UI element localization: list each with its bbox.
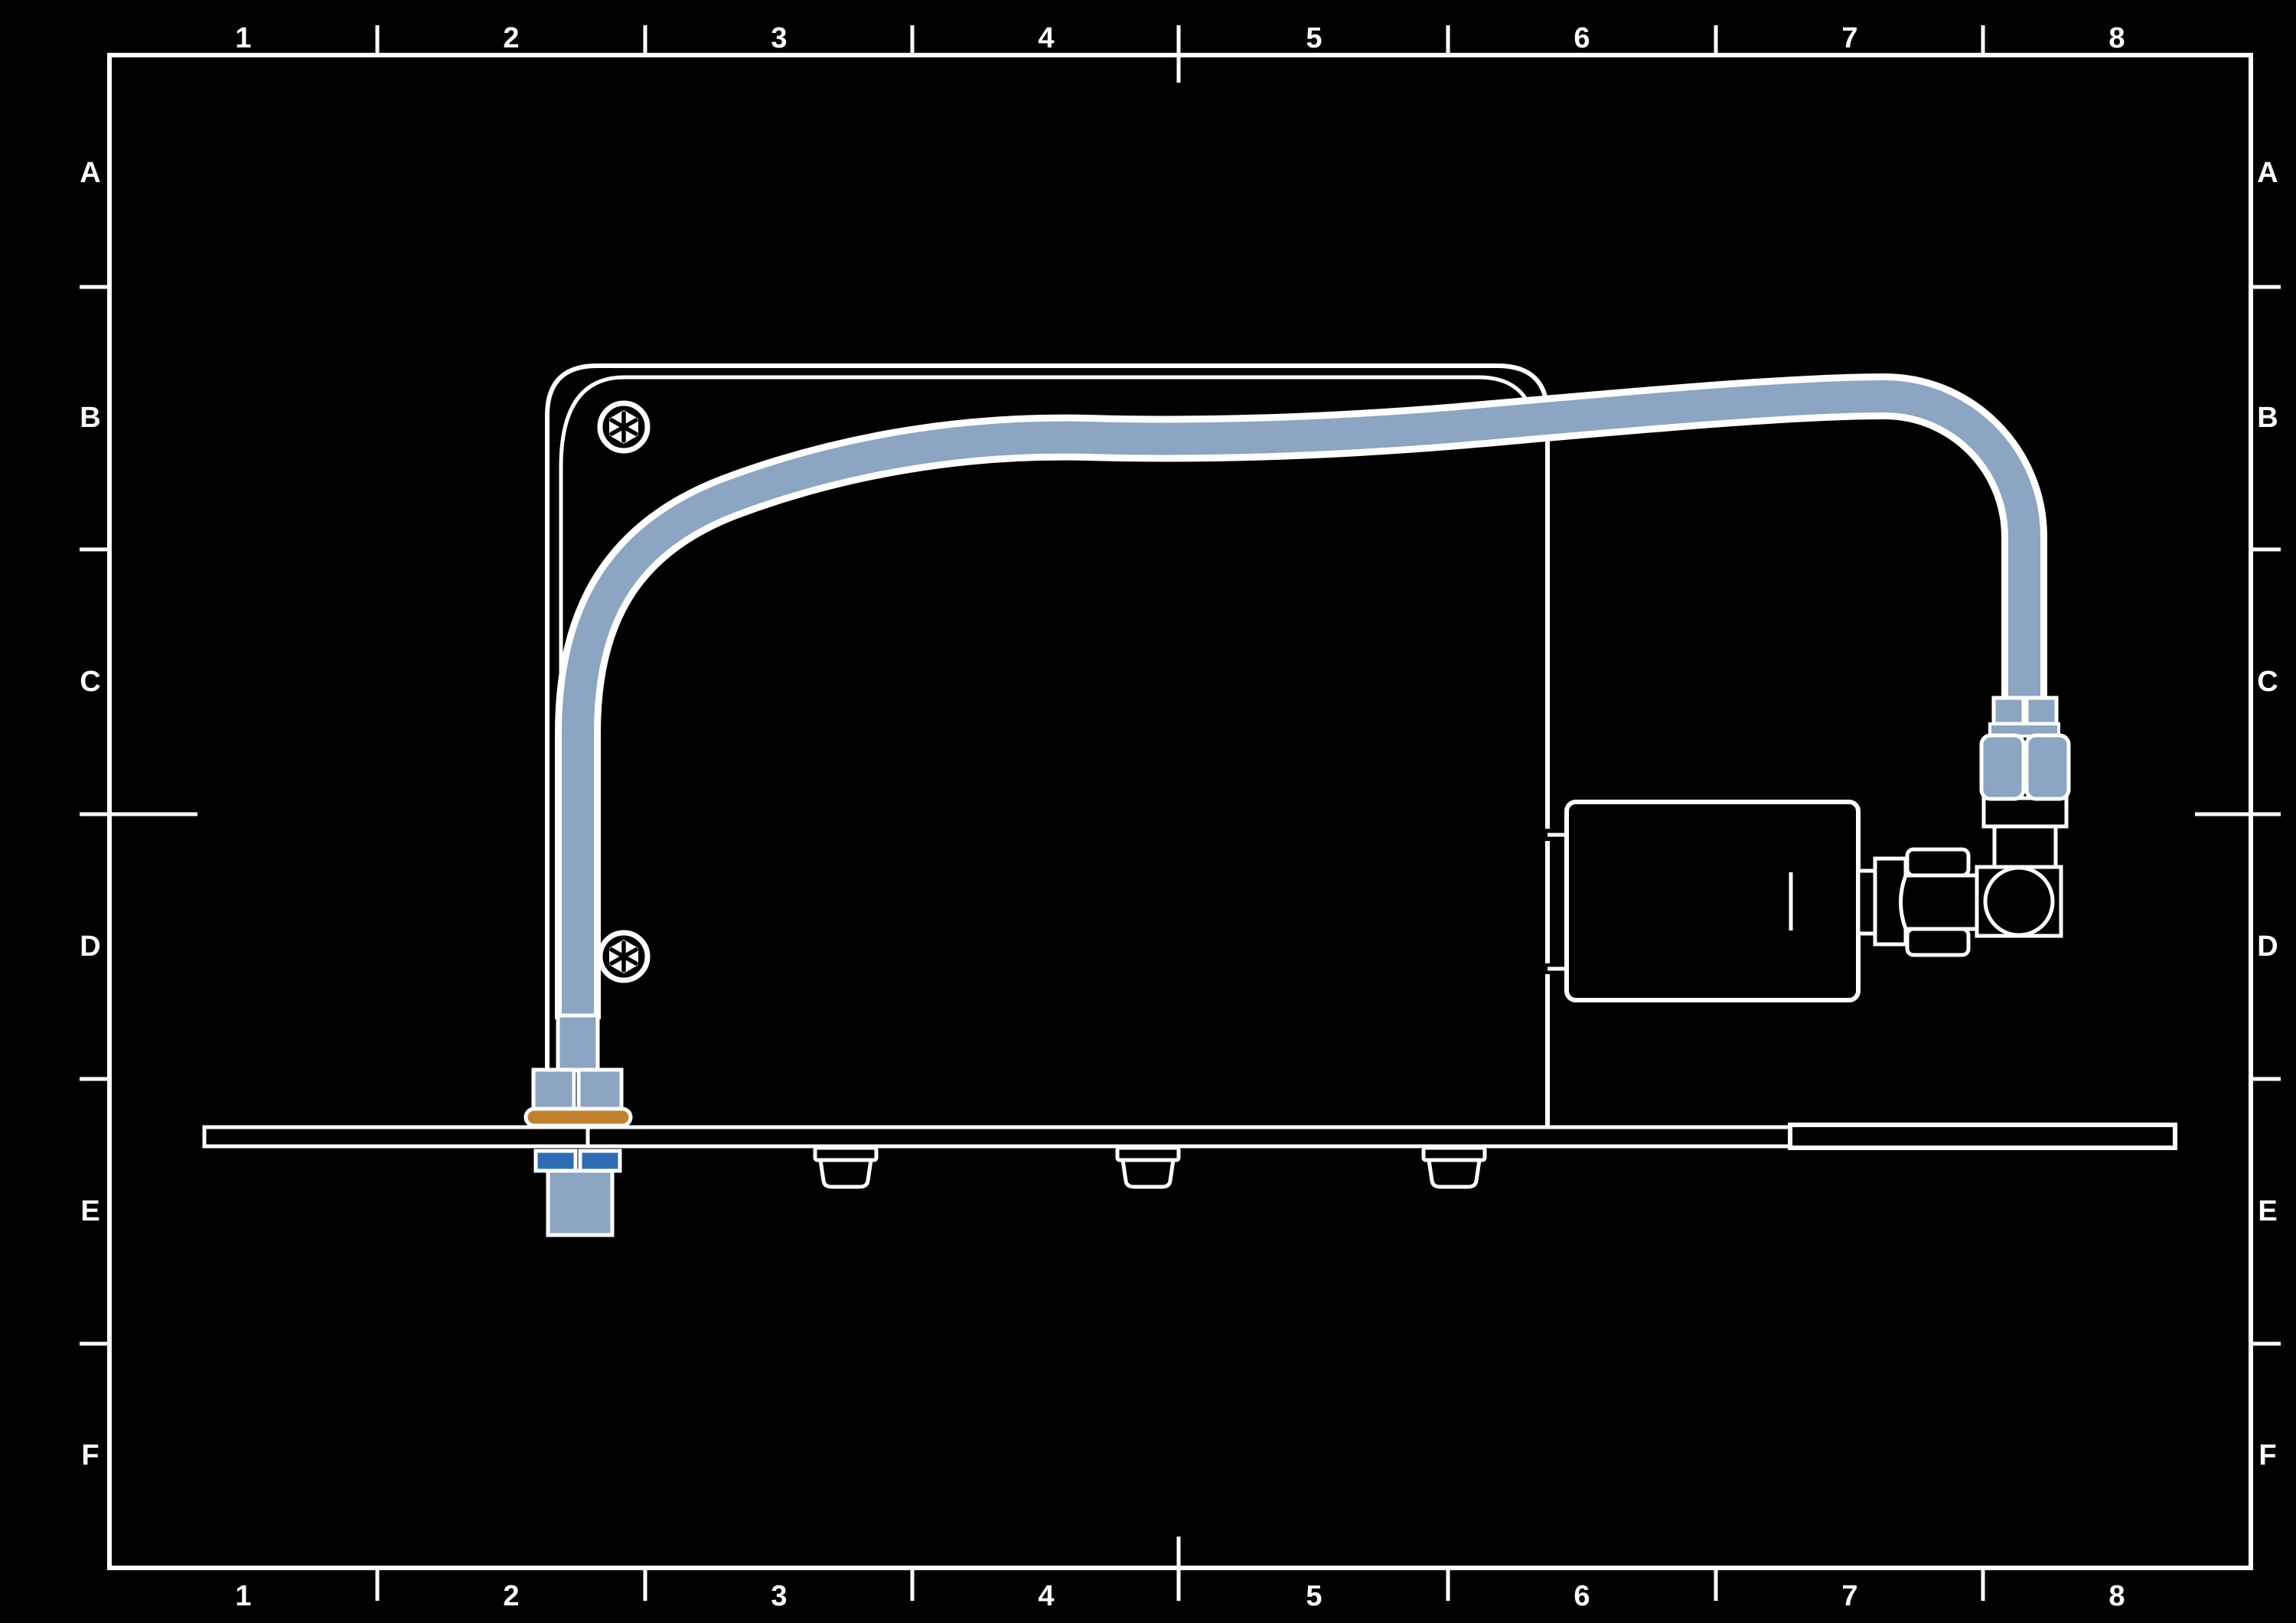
enclosure-outer-outline (547, 366, 1548, 1127)
zone-col-label-top: 6 (1574, 22, 1590, 54)
zone-col-label-bottom: 8 (2108, 1580, 2125, 1612)
border-rectangle (109, 55, 2251, 1568)
zone-col-label-top: 3 (771, 22, 787, 54)
zone-col-label-top: 1 (235, 22, 251, 54)
fitting-hex-half (579, 1070, 621, 1110)
lock-nut-half (536, 1151, 576, 1171)
bulkhead-sensor-fitting (526, 1015, 631, 1235)
elbow-barrel (1985, 868, 2053, 935)
zone-row-label-left: F (81, 1439, 99, 1471)
zone-row-label-right: E (2258, 1195, 2277, 1227)
hex-nut-middle-facet (1901, 875, 1981, 929)
tube-ferrule-half (2027, 698, 2056, 724)
cad-technical-drawing: 1 2 3 4 5 6 7 8 1 2 3 4 5 6 7 8 A B C D … (0, 0, 2296, 1623)
fitting-upper-step (558, 1015, 598, 1071)
zone-row-label-left: B (80, 402, 100, 434)
zone-row-label-right: F (2258, 1439, 2276, 1471)
fitting-hex-half (533, 1070, 574, 1110)
elbow-fitting (1977, 798, 2066, 936)
lock-nut-half (580, 1151, 620, 1171)
tube-nut (1981, 698, 2069, 799)
screw-head-icon (600, 403, 647, 451)
dome-fastener (815, 1148, 876, 1187)
fitting-stub (1858, 871, 1875, 934)
elbow-body-collar (1984, 798, 2066, 826)
zone-col-label-top: 7 (1841, 22, 1857, 54)
zone-col-label-top: 2 (503, 22, 519, 54)
zone-col-label-bottom: 5 (1306, 1580, 1322, 1612)
zone-row-label-right: A (2257, 157, 2278, 189)
hex-nut-bottom-facet (1907, 929, 1968, 955)
tube-nut-hex-lobe (1981, 735, 2024, 799)
zone-col-label-bottom: 2 (503, 1580, 519, 1612)
zone-col-label-top: 4 (1038, 22, 1054, 54)
zone-col-label-bottom: 1 (235, 1580, 251, 1612)
drawing-frame: 1 2 3 4 5 6 7 8 1 2 3 4 5 6 7 8 A B C D … (80, 22, 2281, 1612)
dome-cup (1429, 1160, 1479, 1187)
tube-nut-hex-lobe (2027, 735, 2069, 799)
hex-nut-top-facet (1907, 849, 1968, 875)
mounting-plate-right-segment (1790, 1125, 2175, 1148)
valve-body (1567, 802, 1858, 1000)
zone-col-label-bottom: 6 (1574, 1580, 1590, 1612)
sensor-body (548, 1171, 612, 1235)
zone-col-label-bottom: 7 (1841, 1580, 1857, 1612)
zone-row-label-left: C (80, 666, 100, 698)
zone-col-label-bottom: 3 (771, 1580, 787, 1612)
valve-body-box (1567, 802, 1858, 1000)
screw-head-icon (600, 933, 647, 980)
zone-row-label-right: D (2257, 930, 2278, 963)
gasket-ring (526, 1109, 631, 1126)
zone-col-label-bottom: 4 (1038, 1580, 1054, 1612)
dome-fastener (1424, 1148, 1485, 1187)
dome-cup (820, 1160, 871, 1187)
zone-col-label-top: 5 (1306, 22, 1322, 54)
mounting-plate (204, 1125, 2175, 1148)
right-zone-ticks (2195, 287, 2281, 1344)
compression-fitting (1858, 849, 1981, 955)
tube-ferrule-half (1994, 698, 2024, 724)
zone-col-label-top: 8 (2108, 22, 2125, 54)
zone-row-label-left: E (80, 1195, 99, 1227)
enclosure-panel (547, 366, 1567, 1127)
zone-row-label-right: B (2257, 402, 2278, 434)
dome-fastener (1117, 1148, 1179, 1187)
dome-cup (1123, 1160, 1173, 1187)
enclosure-side-port-tabs (1548, 835, 1567, 969)
left-zone-ticks (80, 287, 197, 1344)
zone-row-label-right: C (2257, 666, 2278, 698)
elbow-neck (1994, 826, 2056, 867)
zone-row-label-left: A (80, 157, 100, 189)
zone-row-label-left: D (80, 930, 100, 963)
